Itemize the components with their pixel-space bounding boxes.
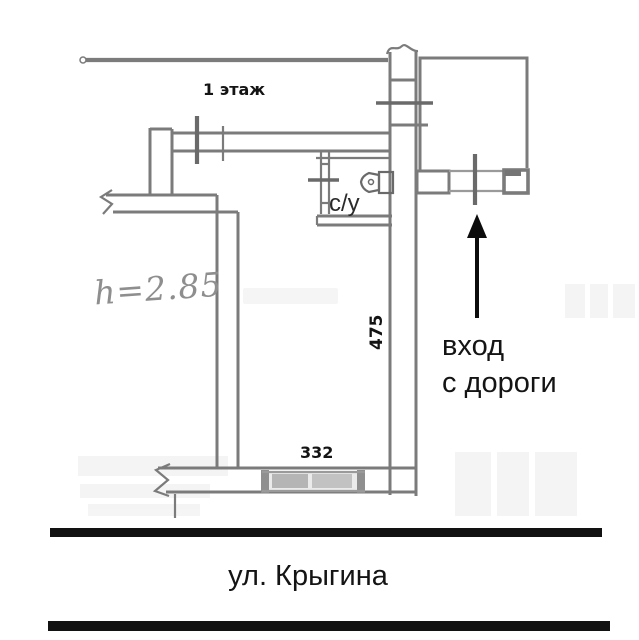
bottom-window-band bbox=[261, 470, 365, 493]
right-wall-shaft bbox=[376, 45, 433, 496]
yard-outline bbox=[420, 58, 527, 170]
dimension-332-label: 332 bbox=[300, 443, 333, 462]
floor-label: 1 этаж bbox=[203, 80, 265, 99]
toilet-icon bbox=[361, 172, 393, 193]
entrance-note-line2: с дороги bbox=[442, 365, 557, 402]
top-wall bbox=[172, 116, 390, 164]
wall-break-mark bbox=[387, 45, 418, 54]
bathroom-label: с/у bbox=[329, 190, 360, 218]
left-pillar bbox=[150, 128, 172, 196]
entrance-arrow-icon bbox=[467, 214, 487, 318]
floor-plan-drawing bbox=[0, 0, 639, 640]
left-wall bbox=[217, 195, 238, 468]
floor-plan-scan: 1 этаж h=2.85 с/у 475 332 вход с дороги … bbox=[0, 0, 639, 640]
site-boundary-line bbox=[80, 57, 388, 63]
entrance-note: вход с дороги bbox=[442, 328, 557, 402]
entrance-passage bbox=[417, 154, 528, 205]
entrance-note-line1: вход bbox=[442, 328, 557, 365]
street-name-label: ул. Крыгина bbox=[0, 560, 616, 593]
dimension-475-label: 475 bbox=[367, 315, 387, 351]
